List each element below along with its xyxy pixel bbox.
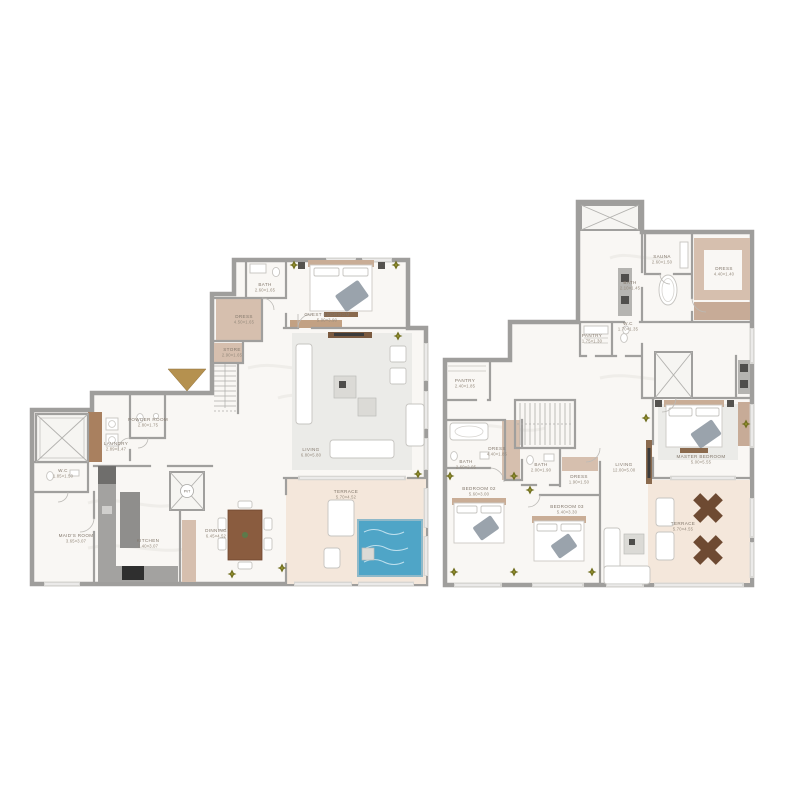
svg-text:SAUNA: SAUNA — [653, 254, 671, 259]
svg-text:1.75×1.30: 1.75×1.30 — [582, 339, 603, 344]
svg-text:BATH: BATH — [459, 459, 472, 464]
svg-text:1.70×1.35: 1.70×1.35 — [618, 327, 639, 332]
svg-text:5.70×4.52: 5.70×4.52 — [336, 495, 357, 500]
bedroom-03-bed — [532, 516, 586, 561]
entry-arrow-icon — [168, 369, 206, 391]
master-bed — [655, 400, 734, 453]
svg-text:4.40×1.85: 4.40×1.85 — [487, 452, 508, 457]
svg-text:BATH: BATH — [258, 282, 271, 287]
label-kitchen: KITCHEN7.40×3.07 — [137, 538, 160, 549]
label-laundry: LAUNDRY2.89×1.47 — [104, 441, 128, 452]
svg-text:W.C: W.C — [58, 468, 68, 473]
label-dress-mid: DRESS4.40×1.85 — [487, 446, 508, 457]
svg-text:TERRACE: TERRACE — [334, 489, 358, 494]
svg-text:6.80×5.80: 6.80×5.80 — [301, 453, 322, 458]
svg-text:GUEST BEDROOM: GUEST BEDROOM — [304, 312, 349, 317]
label-pantry-small: PANTRY1.75×1.30 — [582, 333, 603, 344]
label-sauna: SAUNA2.60×1.50 — [652, 254, 673, 265]
svg-text:5.60×3.00: 5.60×3.00 — [469, 492, 490, 497]
svg-text:LIVING: LIVING — [302, 447, 319, 452]
svg-text:2.60×1.50: 2.60×1.50 — [652, 260, 673, 265]
svg-text:4.50×1.65: 4.50×1.65 — [234, 320, 255, 325]
svg-text:STORE: STORE — [223, 347, 241, 352]
svg-text:5.70×4.55: 5.70×4.55 — [673, 527, 694, 532]
label-store: STORE2.90×1.65 — [222, 347, 243, 358]
svg-text:6.45×4.52: 6.45×4.52 — [206, 534, 227, 539]
svg-text:PANTRY: PANTRY — [455, 378, 475, 383]
label-terrace: TERRACE5.70×4.55 — [671, 521, 695, 532]
svg-text:DRESS: DRESS — [715, 266, 733, 271]
svg-text:DRESS: DRESS — [488, 446, 506, 451]
svg-text:5.00×3.90: 5.00×3.90 — [317, 318, 338, 323]
svg-text:POWDER ROOM: POWDER ROOM — [128, 417, 168, 422]
svg-text:2.00×1.90: 2.00×1.90 — [531, 468, 552, 473]
elevator-shaft — [581, 205, 639, 230]
svg-text:W.C: W.C — [623, 321, 633, 326]
svg-text:PANTRY: PANTRY — [582, 333, 602, 338]
label-living: LIVING6.80×5.80 — [301, 447, 322, 458]
svg-text:4.40×1.40: 4.40×1.40 — [714, 272, 735, 277]
guest-bed — [298, 260, 385, 317]
label-dining: DINNING6.45×4.52 — [205, 528, 227, 539]
svg-text:3.65×3.07: 3.65×3.07 — [66, 539, 87, 544]
svg-text:KITCHEN: KITCHEN — [137, 538, 160, 543]
svg-text:2.10×1.45: 2.10×1.45 — [620, 286, 641, 291]
svg-text:BEDROOM 03: BEDROOM 03 — [550, 504, 584, 509]
svg-text:2.60×1.65: 2.60×1.65 — [255, 288, 276, 293]
svg-text:5.00×5.55: 5.00×5.55 — [691, 460, 712, 465]
svg-text:2.60×2.05: 2.60×2.05 — [456, 465, 477, 470]
svg-text:2.89×1.47: 2.89×1.47 — [106, 447, 127, 452]
floor-plan-left: PVT — [28, 248, 438, 593]
floor-plan-sheet: PVT — [0, 0, 800, 800]
private-lift: PVT — [170, 472, 204, 510]
svg-text:5.40×3.30: 5.40×3.30 — [557, 510, 578, 515]
svg-text:BATH: BATH — [623, 280, 636, 285]
svg-text:2.90×1.65: 2.90×1.65 — [222, 353, 243, 358]
svg-text:BEDROOM 02: BEDROOM 02 — [462, 486, 496, 491]
elevator-shaft — [36, 414, 88, 462]
svg-text:DRESS: DRESS — [570, 474, 588, 479]
svg-text:BATH: BATH — [534, 462, 547, 467]
floor-plan-right: SAUNA2.60×1.50 DRESS4.40×1.40 BATH2.10×1… — [440, 198, 760, 590]
label-terrace: TERRACE5.70×4.52 — [334, 489, 358, 500]
svg-text:1.85×1.50: 1.85×1.50 — [53, 474, 74, 479]
svg-text:7.40×3.07: 7.40×3.07 — [138, 544, 159, 549]
shower-enclosure — [655, 352, 692, 398]
lift-label: PVT — [184, 490, 191, 494]
svg-text:DINNING: DINNING — [205, 528, 227, 533]
svg-text:LAUNDRY: LAUNDRY — [104, 441, 128, 446]
svg-text:2.80×1.75: 2.80×1.75 — [138, 423, 159, 428]
svg-text:TERRACE: TERRACE — [671, 521, 695, 526]
svg-text:12.00×5.00: 12.00×5.00 — [613, 468, 636, 473]
bedroom-02-bed — [452, 498, 506, 543]
svg-text:2.40×1.85: 2.40×1.85 — [455, 384, 476, 389]
svg-text:LIVING: LIVING — [615, 462, 632, 467]
label-dress: DRESS4.50×1.65 — [234, 314, 255, 325]
svg-text:1.90×1.50: 1.90×1.50 — [569, 480, 590, 485]
label-dress-top: DRESS4.40×1.40 — [714, 266, 735, 277]
label-living: LIVING12.00×5.00 — [613, 462, 636, 473]
svg-text:MAID'S ROOM: MAID'S ROOM — [59, 533, 94, 538]
label-dress-small: DRESS1.90×1.50 — [569, 474, 590, 485]
svg-text:MASTER BEDROOM: MASTER BEDROOM — [676, 454, 725, 459]
label-pantry: PANTRY2.40×1.85 — [455, 378, 476, 389]
svg-text:DRESS: DRESS — [235, 314, 253, 319]
